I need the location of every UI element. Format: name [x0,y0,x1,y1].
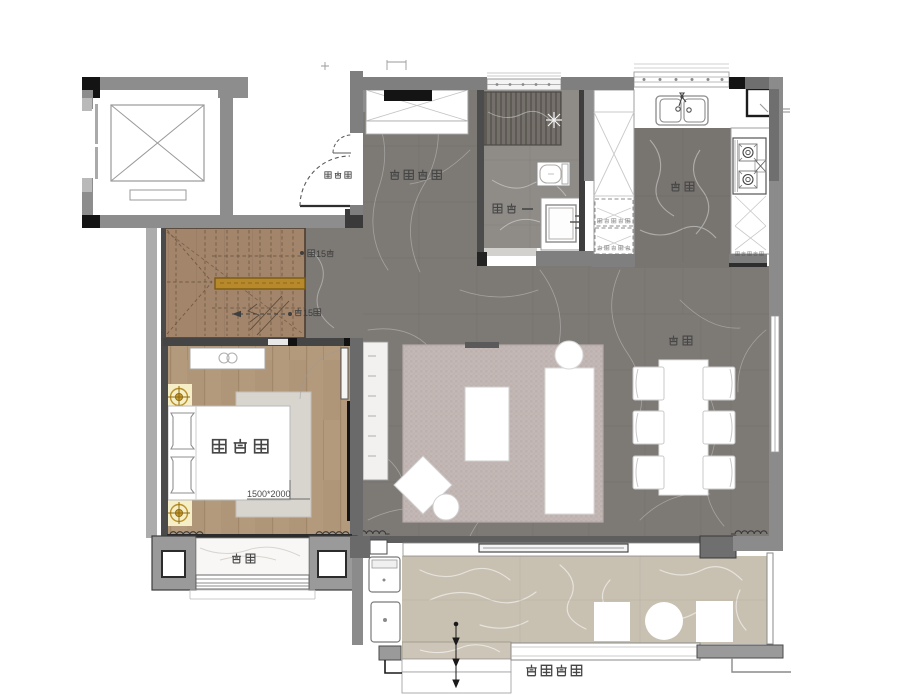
svg-text:15: 15 [303,308,313,318]
svg-text:1500*2000: 1500*2000 [247,489,291,499]
svg-text:15: 15 [316,249,326,259]
